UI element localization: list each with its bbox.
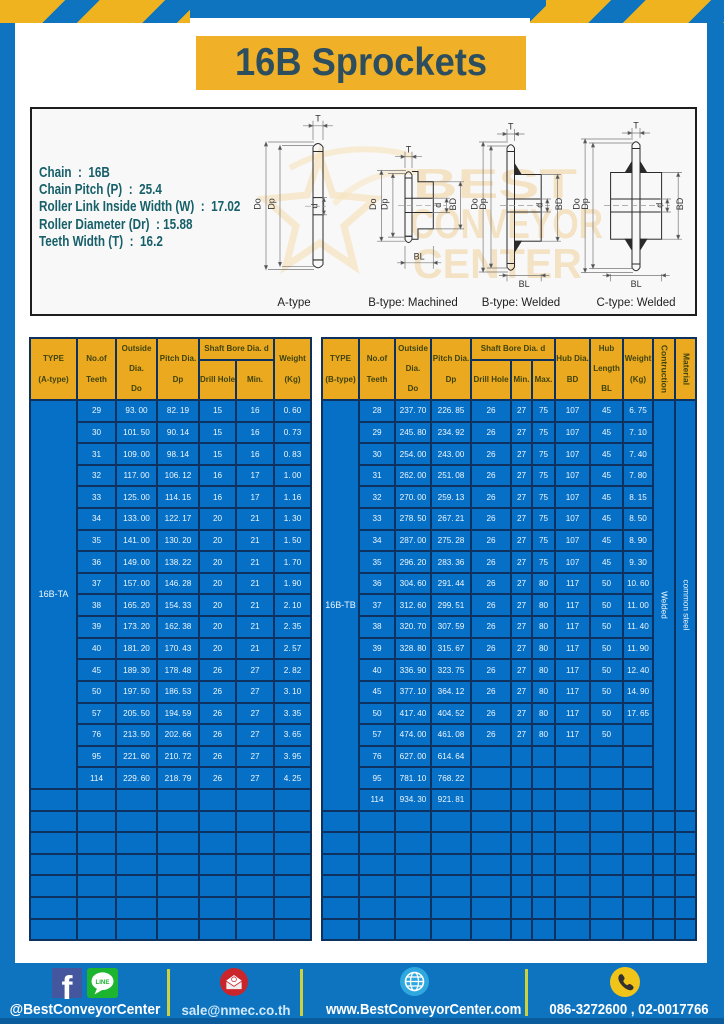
svg-text:BL: BL (414, 252, 425, 262)
svg-text:Dp: Dp (580, 198, 590, 210)
svg-text:BL: BL (519, 279, 530, 289)
svg-text:BD: BD (554, 197, 564, 210)
svg-text:d: d (535, 203, 545, 208)
svg-text:BL: BL (631, 279, 642, 289)
svg-text:BD: BD (675, 197, 685, 210)
svg-text:Dp: Dp (478, 198, 488, 210)
svg-text:T: T (508, 122, 514, 132)
svg-text:Do: Do (253, 198, 263, 210)
svg-text:LINE: LINE (95, 979, 109, 986)
svg-text:Do: Do (368, 199, 378, 211)
svg-text:A-type: A-type (277, 297, 310, 309)
svg-text:Dp: Dp (380, 199, 390, 211)
svg-text:d: d (433, 203, 443, 208)
svg-text:T: T (633, 121, 639, 131)
svg-text:Dp: Dp (267, 198, 277, 210)
svg-text:T: T (315, 114, 321, 124)
svg-text:B-type: Machined: B-type: Machined (368, 297, 458, 309)
svg-text:BD: BD (448, 198, 458, 211)
svg-text:d: d (655, 203, 665, 208)
svg-text:T: T (406, 145, 412, 155)
svg-text:B-type: Welded: B-type: Welded (482, 297, 560, 309)
svg-text:C-type: Welded: C-type: Welded (596, 297, 675, 309)
